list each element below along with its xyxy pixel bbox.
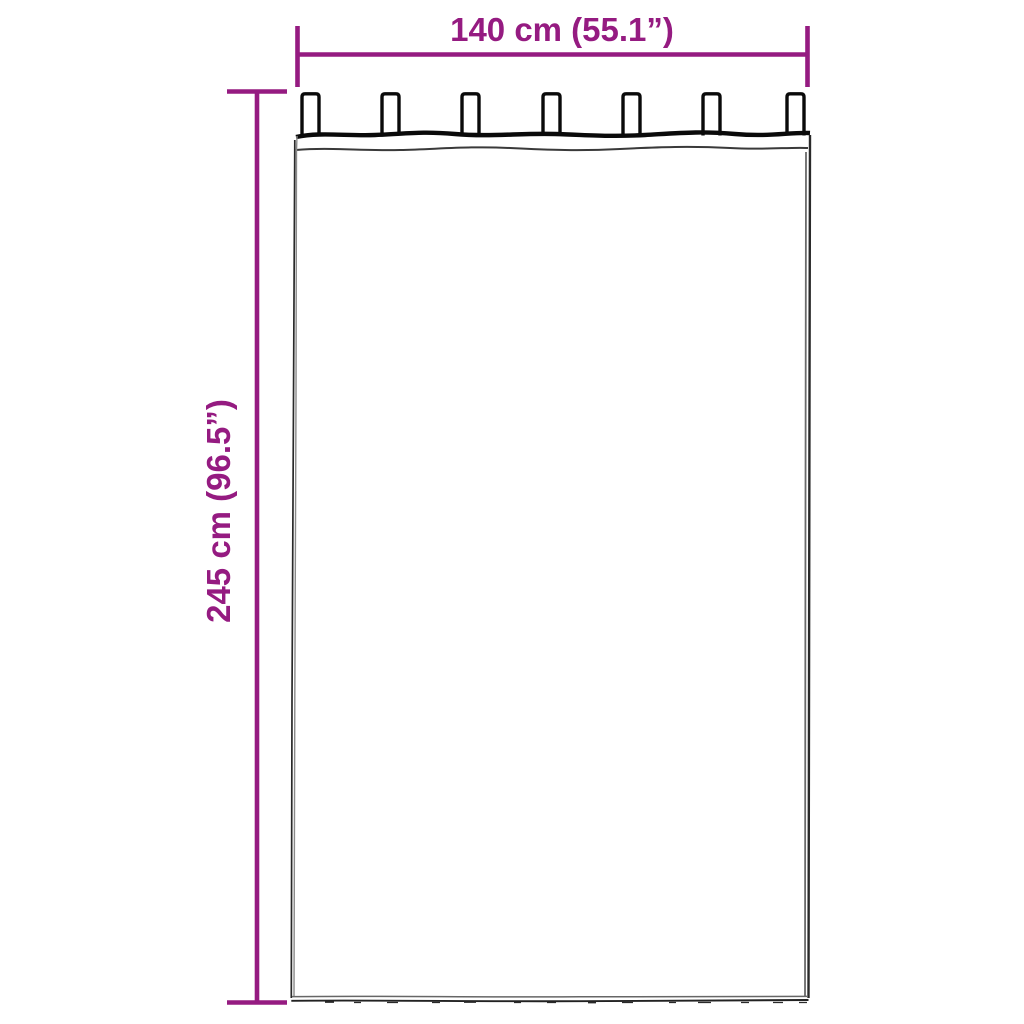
svg-text:245 cm (96.5”): 245 cm (96.5”) <box>200 399 237 623</box>
svg-text:140 cm (55.1”): 140 cm (55.1”) <box>450 11 674 48</box>
